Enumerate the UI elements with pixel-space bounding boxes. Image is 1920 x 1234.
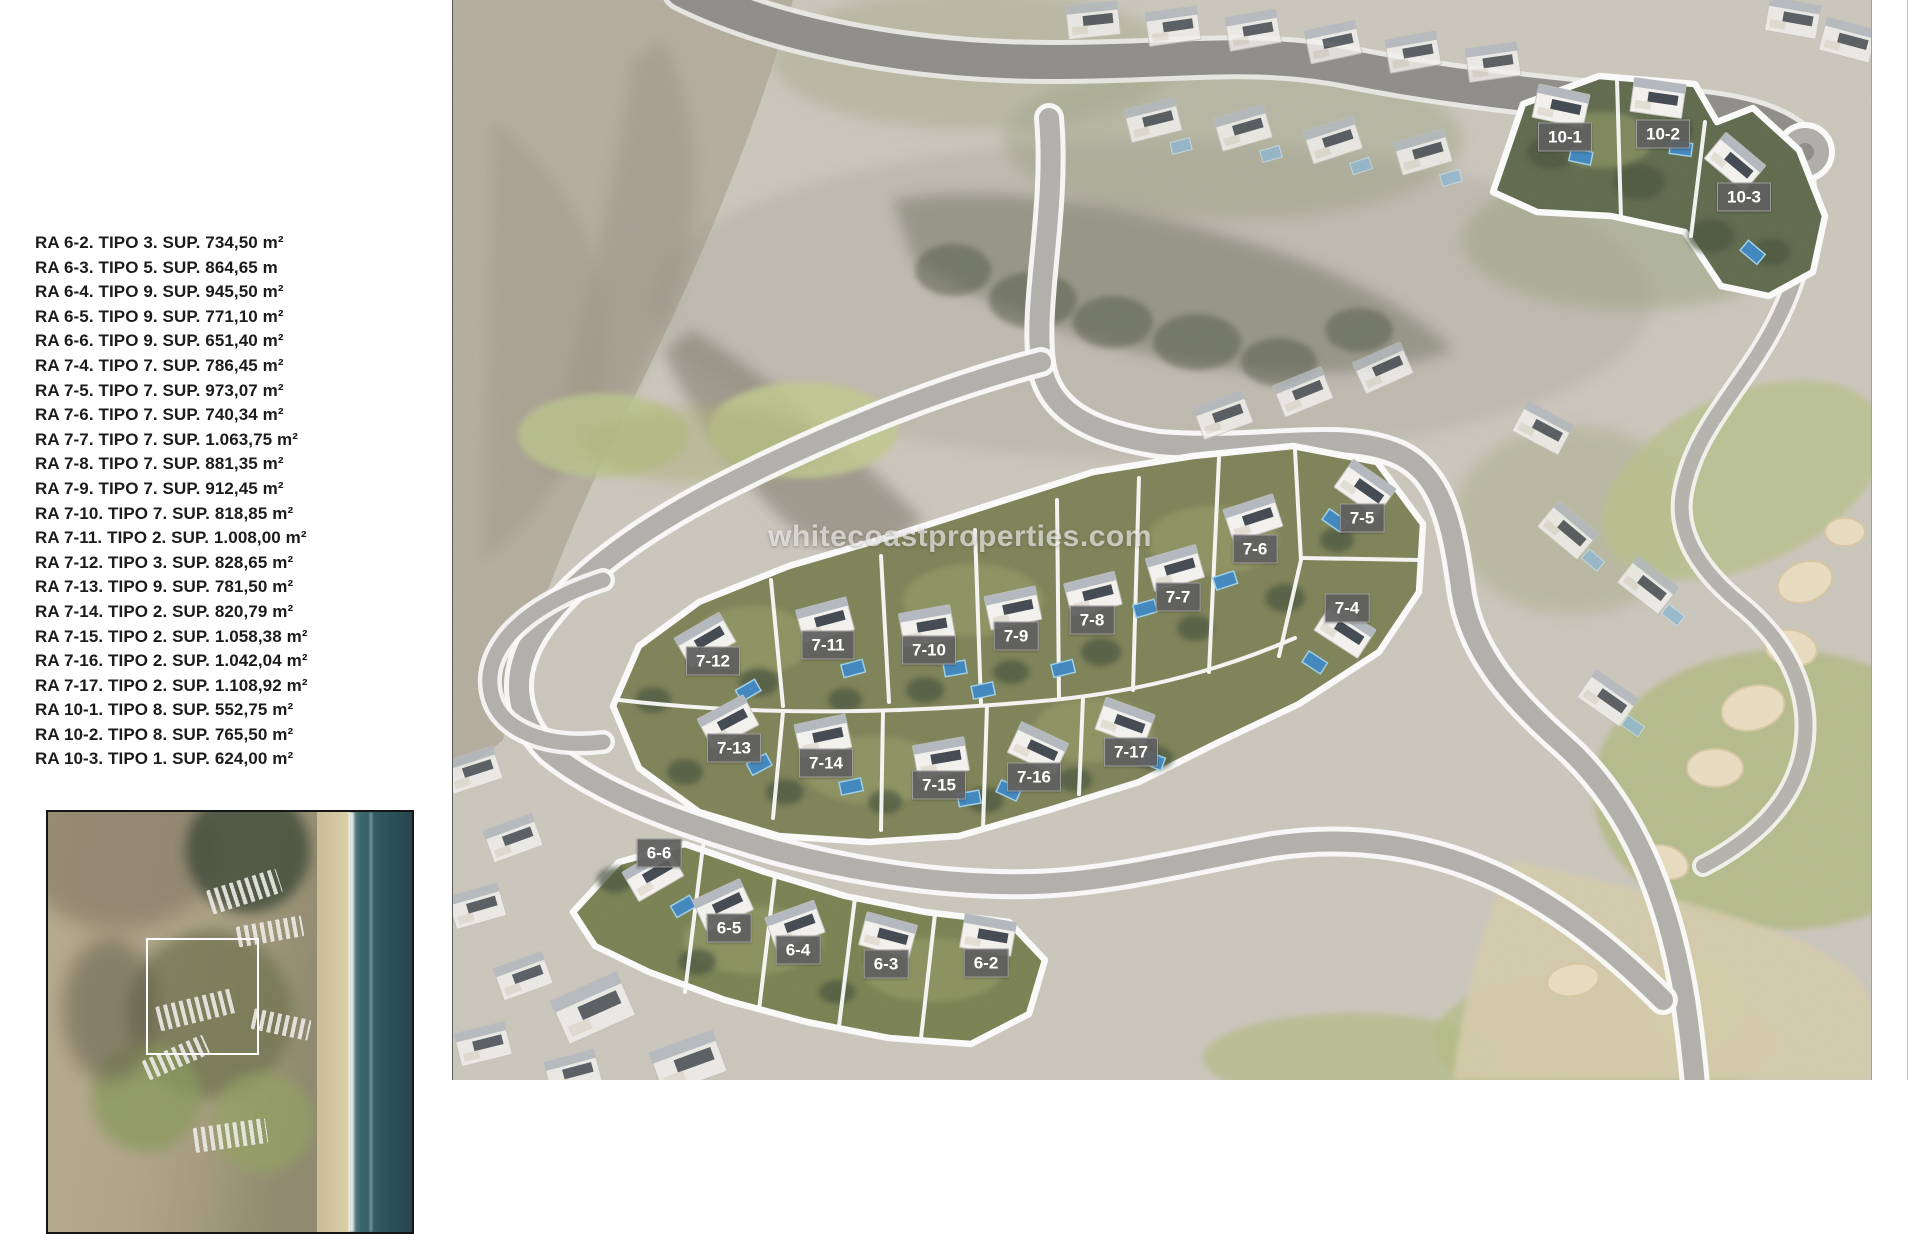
- plot-label-7-6: 7-6: [1233, 535, 1278, 564]
- legend-row-ra-6-4: RA 6-4. TIPO 9. SUP. 945,50 m²: [35, 280, 308, 305]
- legend-row-ra-7-17: RA 7-17. TIPO 2. SUP. 1.108,92 m²: [35, 674, 308, 699]
- plot-label-6-3: 6-3: [864, 950, 909, 979]
- plot-label-7-12: 7-12: [686, 647, 740, 676]
- legend-row-ra-10-2: RA 10-2. TIPO 8. SUP. 765,50 m²: [35, 723, 308, 748]
- legend-row-ra-7-10: RA 7-10. TIPO 7. SUP. 818,85 m²: [35, 502, 308, 527]
- plot-label-6-4: 6-4: [776, 936, 821, 965]
- plot-label-10-2: 10-2: [1636, 120, 1690, 149]
- legend-row-ra-7-13: RA 7-13. TIPO 9. SUP. 781,50 m²: [35, 575, 308, 600]
- inset-surf-line: [349, 812, 354, 1232]
- legend-row-ra-6-6: RA 6-6. TIPO 9. SUP. 651,40 m²: [35, 329, 308, 354]
- plot-label-6-6: 6-6: [637, 839, 682, 868]
- plot-label-10-1: 10-1: [1538, 123, 1592, 152]
- master-plan-map: whitecoastproperties.com 10-110-210-37-5…: [452, 0, 1872, 1080]
- plot-label-7-10: 7-10: [902, 636, 956, 665]
- legend-row-ra-7-4: RA 7-4. TIPO 7. SUP. 786,45 m²: [35, 354, 308, 379]
- legend-row-ra-7-9: RA 7-9. TIPO 7. SUP. 912,45 m²: [35, 477, 308, 502]
- watermark: whitecoastproperties.com: [768, 520, 1152, 554]
- legend-row-ra-6-5: RA 6-5. TIPO 9. SUP. 771,10 m²: [35, 305, 308, 330]
- plot-label-7-9: 7-9: [994, 622, 1039, 651]
- legend-row-ra-7-5: RA 7-5. TIPO 7. SUP. 973,07 m²: [35, 379, 308, 404]
- legend-row-ra-7-11: RA 7-11. TIPO 2. SUP. 1.008,00 m²: [35, 526, 308, 551]
- legend-row-ra-7-14: RA 7-14. TIPO 2. SUP. 820,79 m²: [35, 600, 308, 625]
- legend-row-ra-7-8: RA 7-8. TIPO 7. SUP. 881,35 m²: [35, 452, 308, 477]
- left-panel: RA 6-2. TIPO 3. SUP. 734,50 m²RA 6-3. TI…: [0, 0, 452, 1080]
- page-edge-line: [1907, 0, 1908, 1080]
- plot-label-7-15: 7-15: [912, 771, 966, 800]
- inset-surf-line-2: [370, 812, 372, 1232]
- plot-label-10-3: 10-3: [1717, 183, 1771, 212]
- plot-label-6-5: 6-5: [707, 914, 752, 943]
- inset-ocean: [350, 812, 412, 1232]
- plot-label-7-17: 7-17: [1104, 738, 1158, 767]
- plot-label-7-11: 7-11: [801, 631, 854, 660]
- plot-label-7-8: 7-8: [1070, 606, 1115, 635]
- legend-row-ra-7-16: RA 7-16. TIPO 2. SUP. 1.042,04 m²: [35, 649, 308, 674]
- plot-label-7-4: 7-4: [1325, 594, 1370, 623]
- plot-label-7-14: 7-14: [799, 749, 853, 778]
- legend-row-ra-7-6: RA 7-6. TIPO 7. SUP. 740,34 m²: [35, 403, 308, 428]
- legend-row-ra-7-12: RA 7-12. TIPO 3. SUP. 828,65 m²: [35, 551, 308, 576]
- plot-label-6-2: 6-2: [964, 949, 1009, 978]
- legend-row-ra-7-15: RA 7-15. TIPO 2. SUP. 1.058,38 m²: [35, 625, 308, 650]
- inset-beach: [317, 812, 350, 1232]
- plot-legend-list: RA 6-2. TIPO 3. SUP. 734,50 m²RA 6-3. TI…: [35, 231, 308, 772]
- legend-row-ra-10-3: RA 10-3. TIPO 1. SUP. 624,00 m²: [35, 747, 308, 772]
- legend-row-ra-6-2: RA 6-2. TIPO 3. SUP. 734,50 m²: [35, 231, 308, 256]
- plot-label-7-16: 7-16: [1007, 763, 1061, 792]
- site-plan-page: { "legend": { "items": [ {"ra":"RA 6-2",…: [0, 0, 1920, 1080]
- aerial-plan-art: [453, 0, 1871, 1080]
- plot-label-7-5: 7-5: [1340, 504, 1385, 533]
- location-inset-map: [46, 810, 414, 1234]
- legend-row-ra-10-1: RA 10-1. TIPO 8. SUP. 552,75 m²: [35, 698, 308, 723]
- photo-grain: [453, 0, 1871, 1080]
- plot-label-7-13: 7-13: [707, 734, 761, 763]
- plot-label-7-7: 7-7: [1156, 583, 1201, 612]
- inset-focus-rectangle: [146, 938, 259, 1055]
- legend-row-ra-6-3: RA 6-3. TIPO 5. SUP. 864,65 m: [35, 256, 308, 281]
- legend-row-ra-7-7: RA 7-7. TIPO 7. SUP. 1.063,75 m²: [35, 428, 308, 453]
